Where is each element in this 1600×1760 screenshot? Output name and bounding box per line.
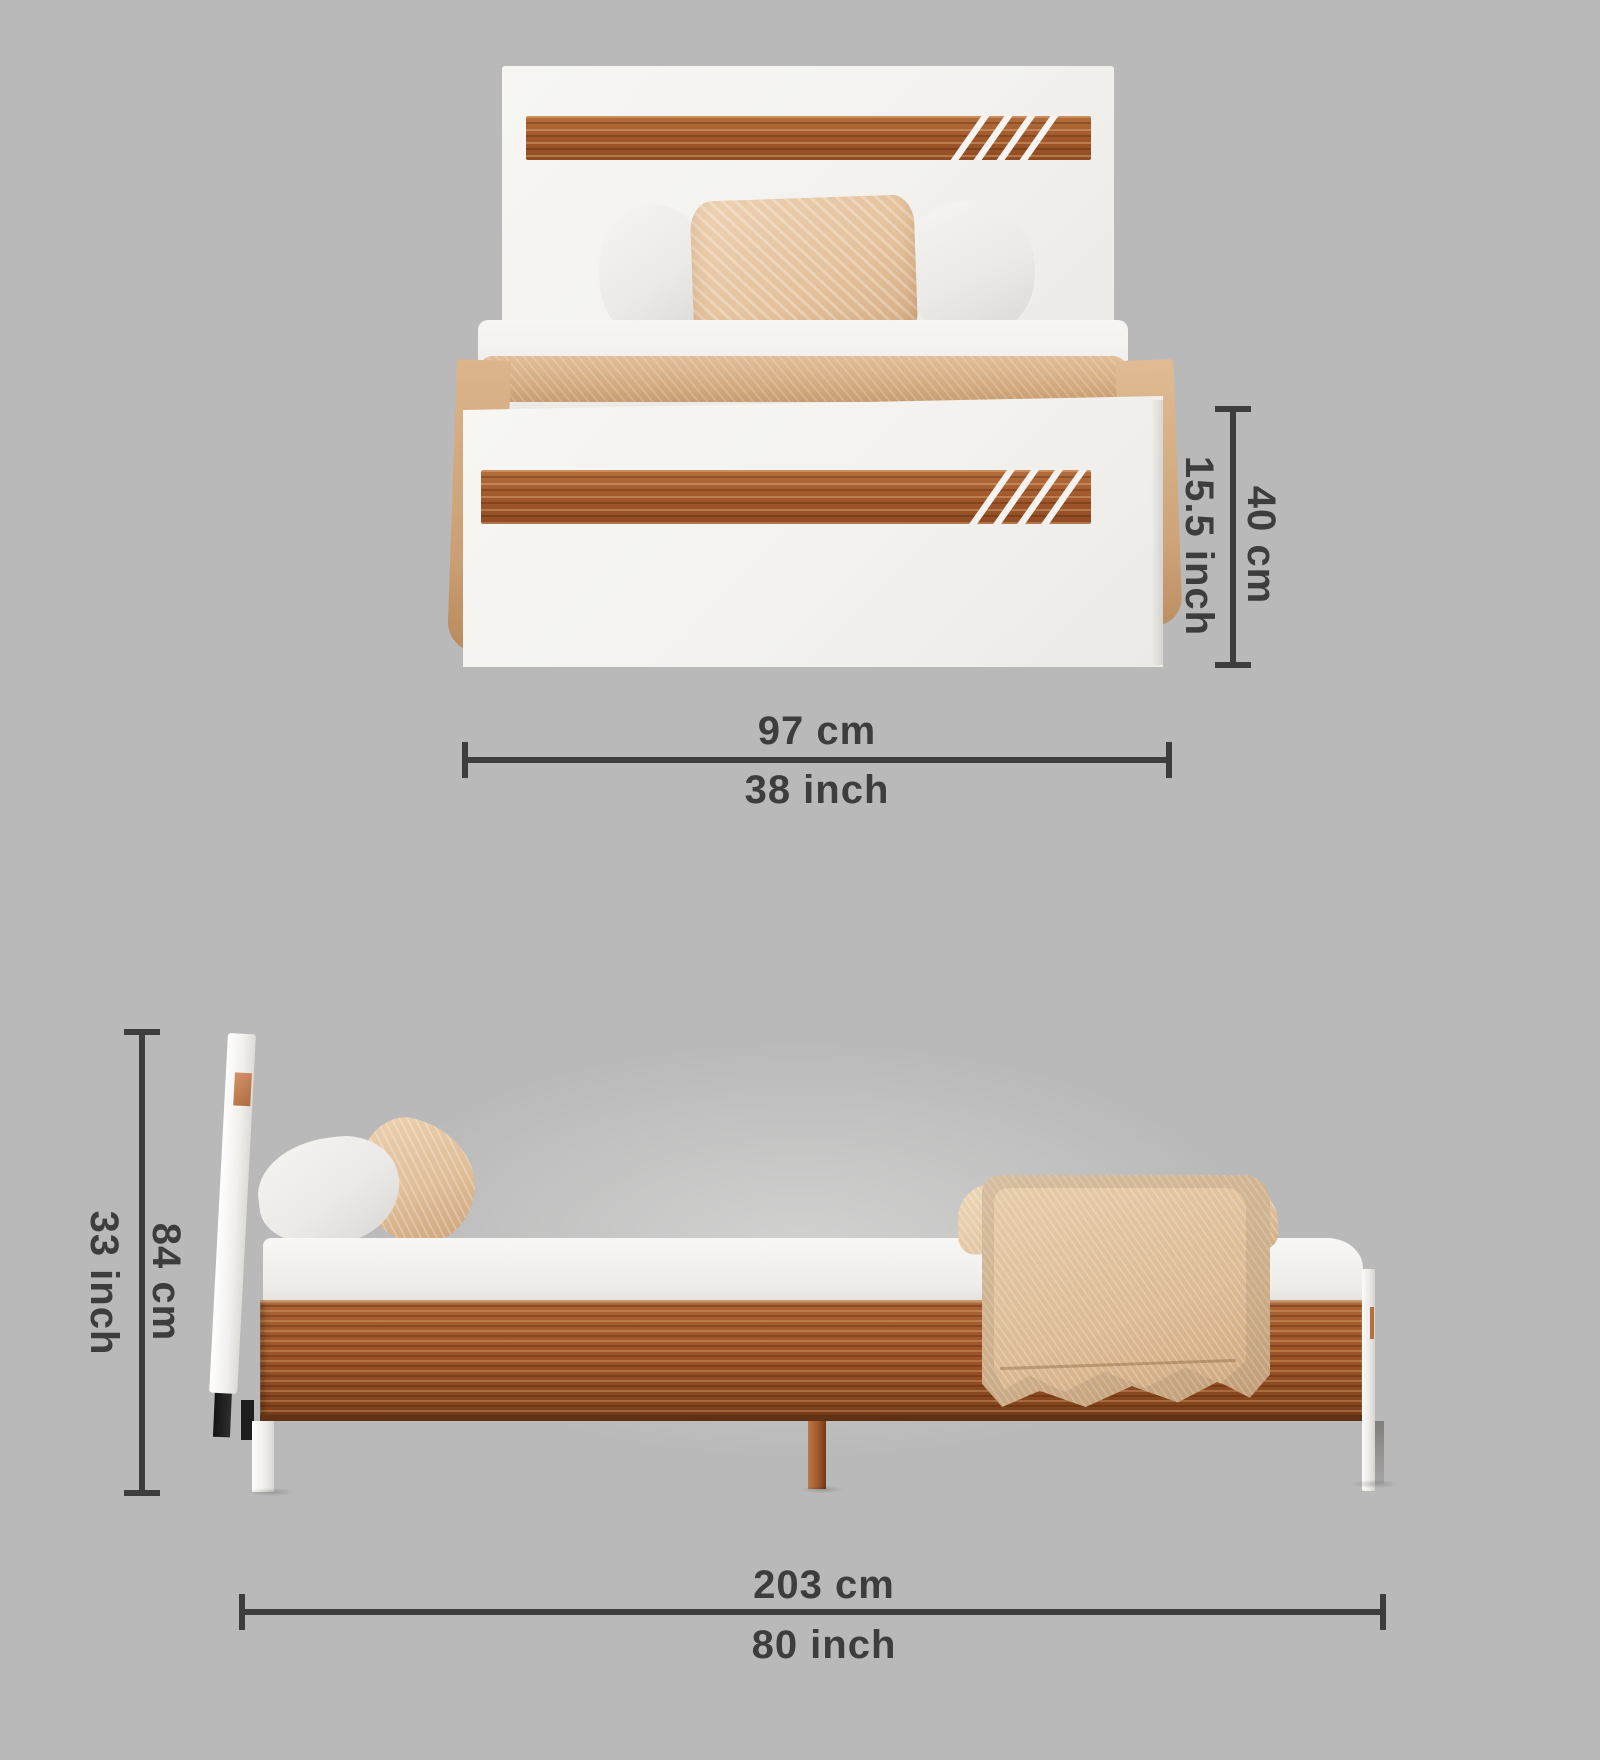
front-width-inch-label: 38 inch <box>745 770 890 810</box>
dimension-line <box>465 757 1169 763</box>
dimension-cap <box>462 742 468 778</box>
bed-side-view: 33 inch 84 cm 203 cm 80 inch <box>0 880 1600 1760</box>
front-width-dimension: 97 cm 38 inch <box>0 0 1600 880</box>
bed-front-view: 15.5 inch 40 cm 97 cm 38 inch <box>0 0 1600 880</box>
side-length-dimension: 203 cm 80 inch <box>0 880 1600 1760</box>
front-width-cm-label: 97 cm <box>758 711 876 751</box>
side-length-inch-label: 80 inch <box>752 1625 897 1665</box>
dimension-line <box>242 1609 1383 1615</box>
dimension-cap <box>239 1594 245 1630</box>
side-length-cm-label: 203 cm <box>753 1565 895 1605</box>
dimension-cap <box>1380 1594 1386 1630</box>
dimension-cap <box>1166 742 1172 778</box>
diagram-canvas: 15.5 inch 40 cm 97 cm 38 inch <box>0 0 1600 1760</box>
